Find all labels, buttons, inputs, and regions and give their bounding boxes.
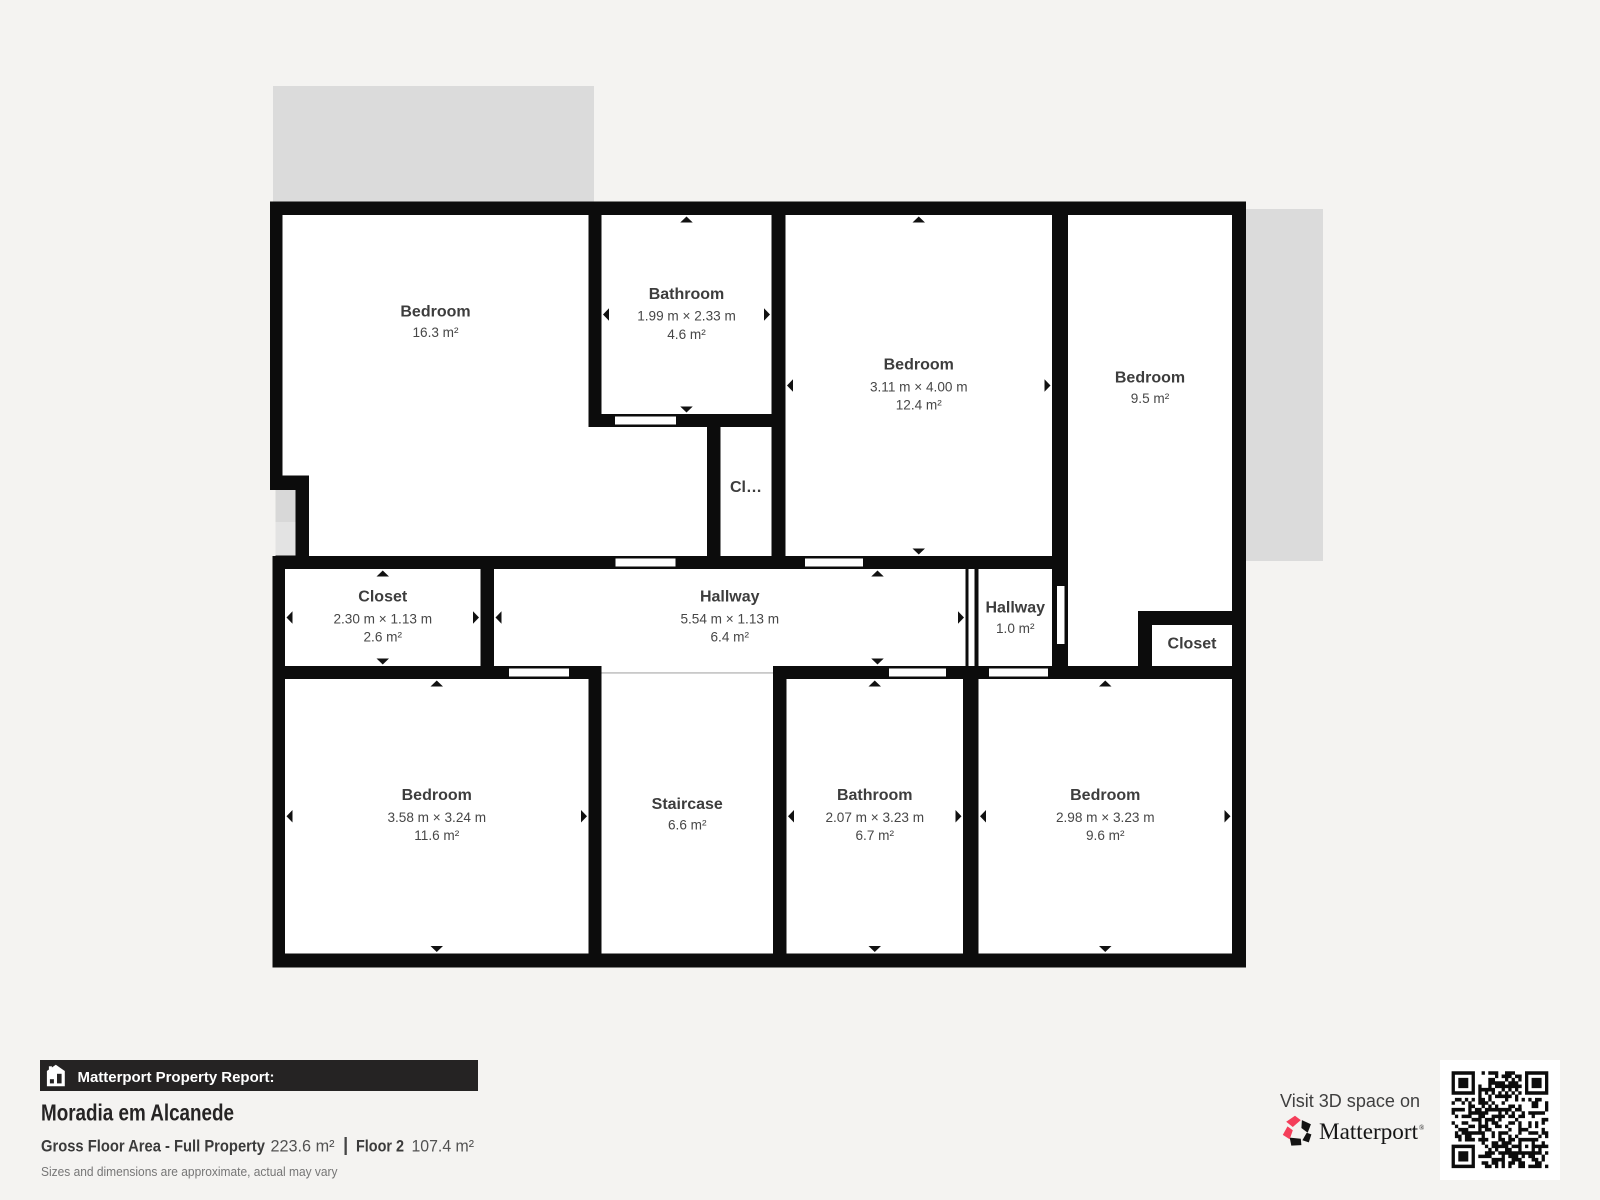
svg-text:9.5 m²: 9.5 m² <box>1131 391 1170 406</box>
svg-text:9.6 m²: 9.6 m² <box>1086 828 1125 843</box>
svg-text:223.6 m²: 223.6 m² <box>271 1137 335 1156</box>
svg-text:Moradia em Alcanede: Moradia em Alcanede <box>41 1100 234 1126</box>
svg-text:Bedroom: Bedroom <box>402 787 472 804</box>
svg-text:1.99 m × 2.33 m: 1.99 m × 2.33 m <box>637 309 736 324</box>
svg-text:Bedroom: Bedroom <box>884 357 954 374</box>
svg-text:Staircase: Staircase <box>652 796 723 813</box>
svg-text:4.6 m²: 4.6 m² <box>667 327 706 342</box>
svg-text:Sizes and dimensions are appro: Sizes and dimensions are approximate, ac… <box>41 1165 338 1179</box>
svg-text:2.30 m × 1.13 m: 2.30 m × 1.13 m <box>333 611 432 626</box>
svg-text:6.7 m²: 6.7 m² <box>855 828 894 843</box>
svg-text:Floor 2: Floor 2 <box>356 1137 404 1156</box>
svg-text:Cl…: Cl… <box>730 479 762 496</box>
svg-text:Bedroom: Bedroom <box>1115 370 1185 387</box>
svg-text:Bedroom: Bedroom <box>1070 787 1140 804</box>
svg-text:Matterport: Matterport <box>1319 1119 1419 1144</box>
svg-text:Bathroom: Bathroom <box>837 787 913 804</box>
svg-text:11.6 m²: 11.6 m² <box>414 828 460 843</box>
svg-text:3.58 m × 3.24 m: 3.58 m × 3.24 m <box>387 810 486 825</box>
svg-text:6.4 m²: 6.4 m² <box>710 630 749 645</box>
svg-text:Matterport Property Report:: Matterport Property Report: <box>78 1069 275 1086</box>
svg-text:16.3 m²: 16.3 m² <box>412 325 459 340</box>
svg-text:1.0 m²: 1.0 m² <box>996 621 1035 636</box>
svg-text:®: ® <box>1419 1124 1425 1132</box>
svg-text:Closet: Closet <box>358 589 408 606</box>
svg-text:Hallway: Hallway <box>700 589 760 606</box>
svg-text:3.11 m × 4.00 m: 3.11 m × 4.00 m <box>870 379 968 394</box>
svg-text:Bedroom: Bedroom <box>400 304 470 321</box>
svg-text:107.4 m²: 107.4 m² <box>412 1137 475 1156</box>
svg-text:Closet: Closet <box>1168 636 1218 653</box>
svg-text:Hallway: Hallway <box>985 600 1045 617</box>
svg-text:2.07 m × 3.23 m: 2.07 m × 3.23 m <box>825 810 924 825</box>
svg-text:12.4 m²: 12.4 m² <box>896 398 943 413</box>
svg-text:6.6 m²: 6.6 m² <box>668 818 707 833</box>
svg-text:Bathroom: Bathroom <box>649 286 725 303</box>
svg-text:Gross Floor Area - Full Proper: Gross Floor Area - Full Property <box>41 1137 265 1156</box>
svg-text:5.54 m × 1.13 m: 5.54 m × 1.13 m <box>680 611 779 626</box>
svg-text:Visit 3D space on: Visit 3D space on <box>1280 1091 1420 1111</box>
svg-text:2.98 m × 3.23 m: 2.98 m × 3.23 m <box>1056 810 1155 825</box>
svg-text:2.6 m²: 2.6 m² <box>363 630 402 645</box>
